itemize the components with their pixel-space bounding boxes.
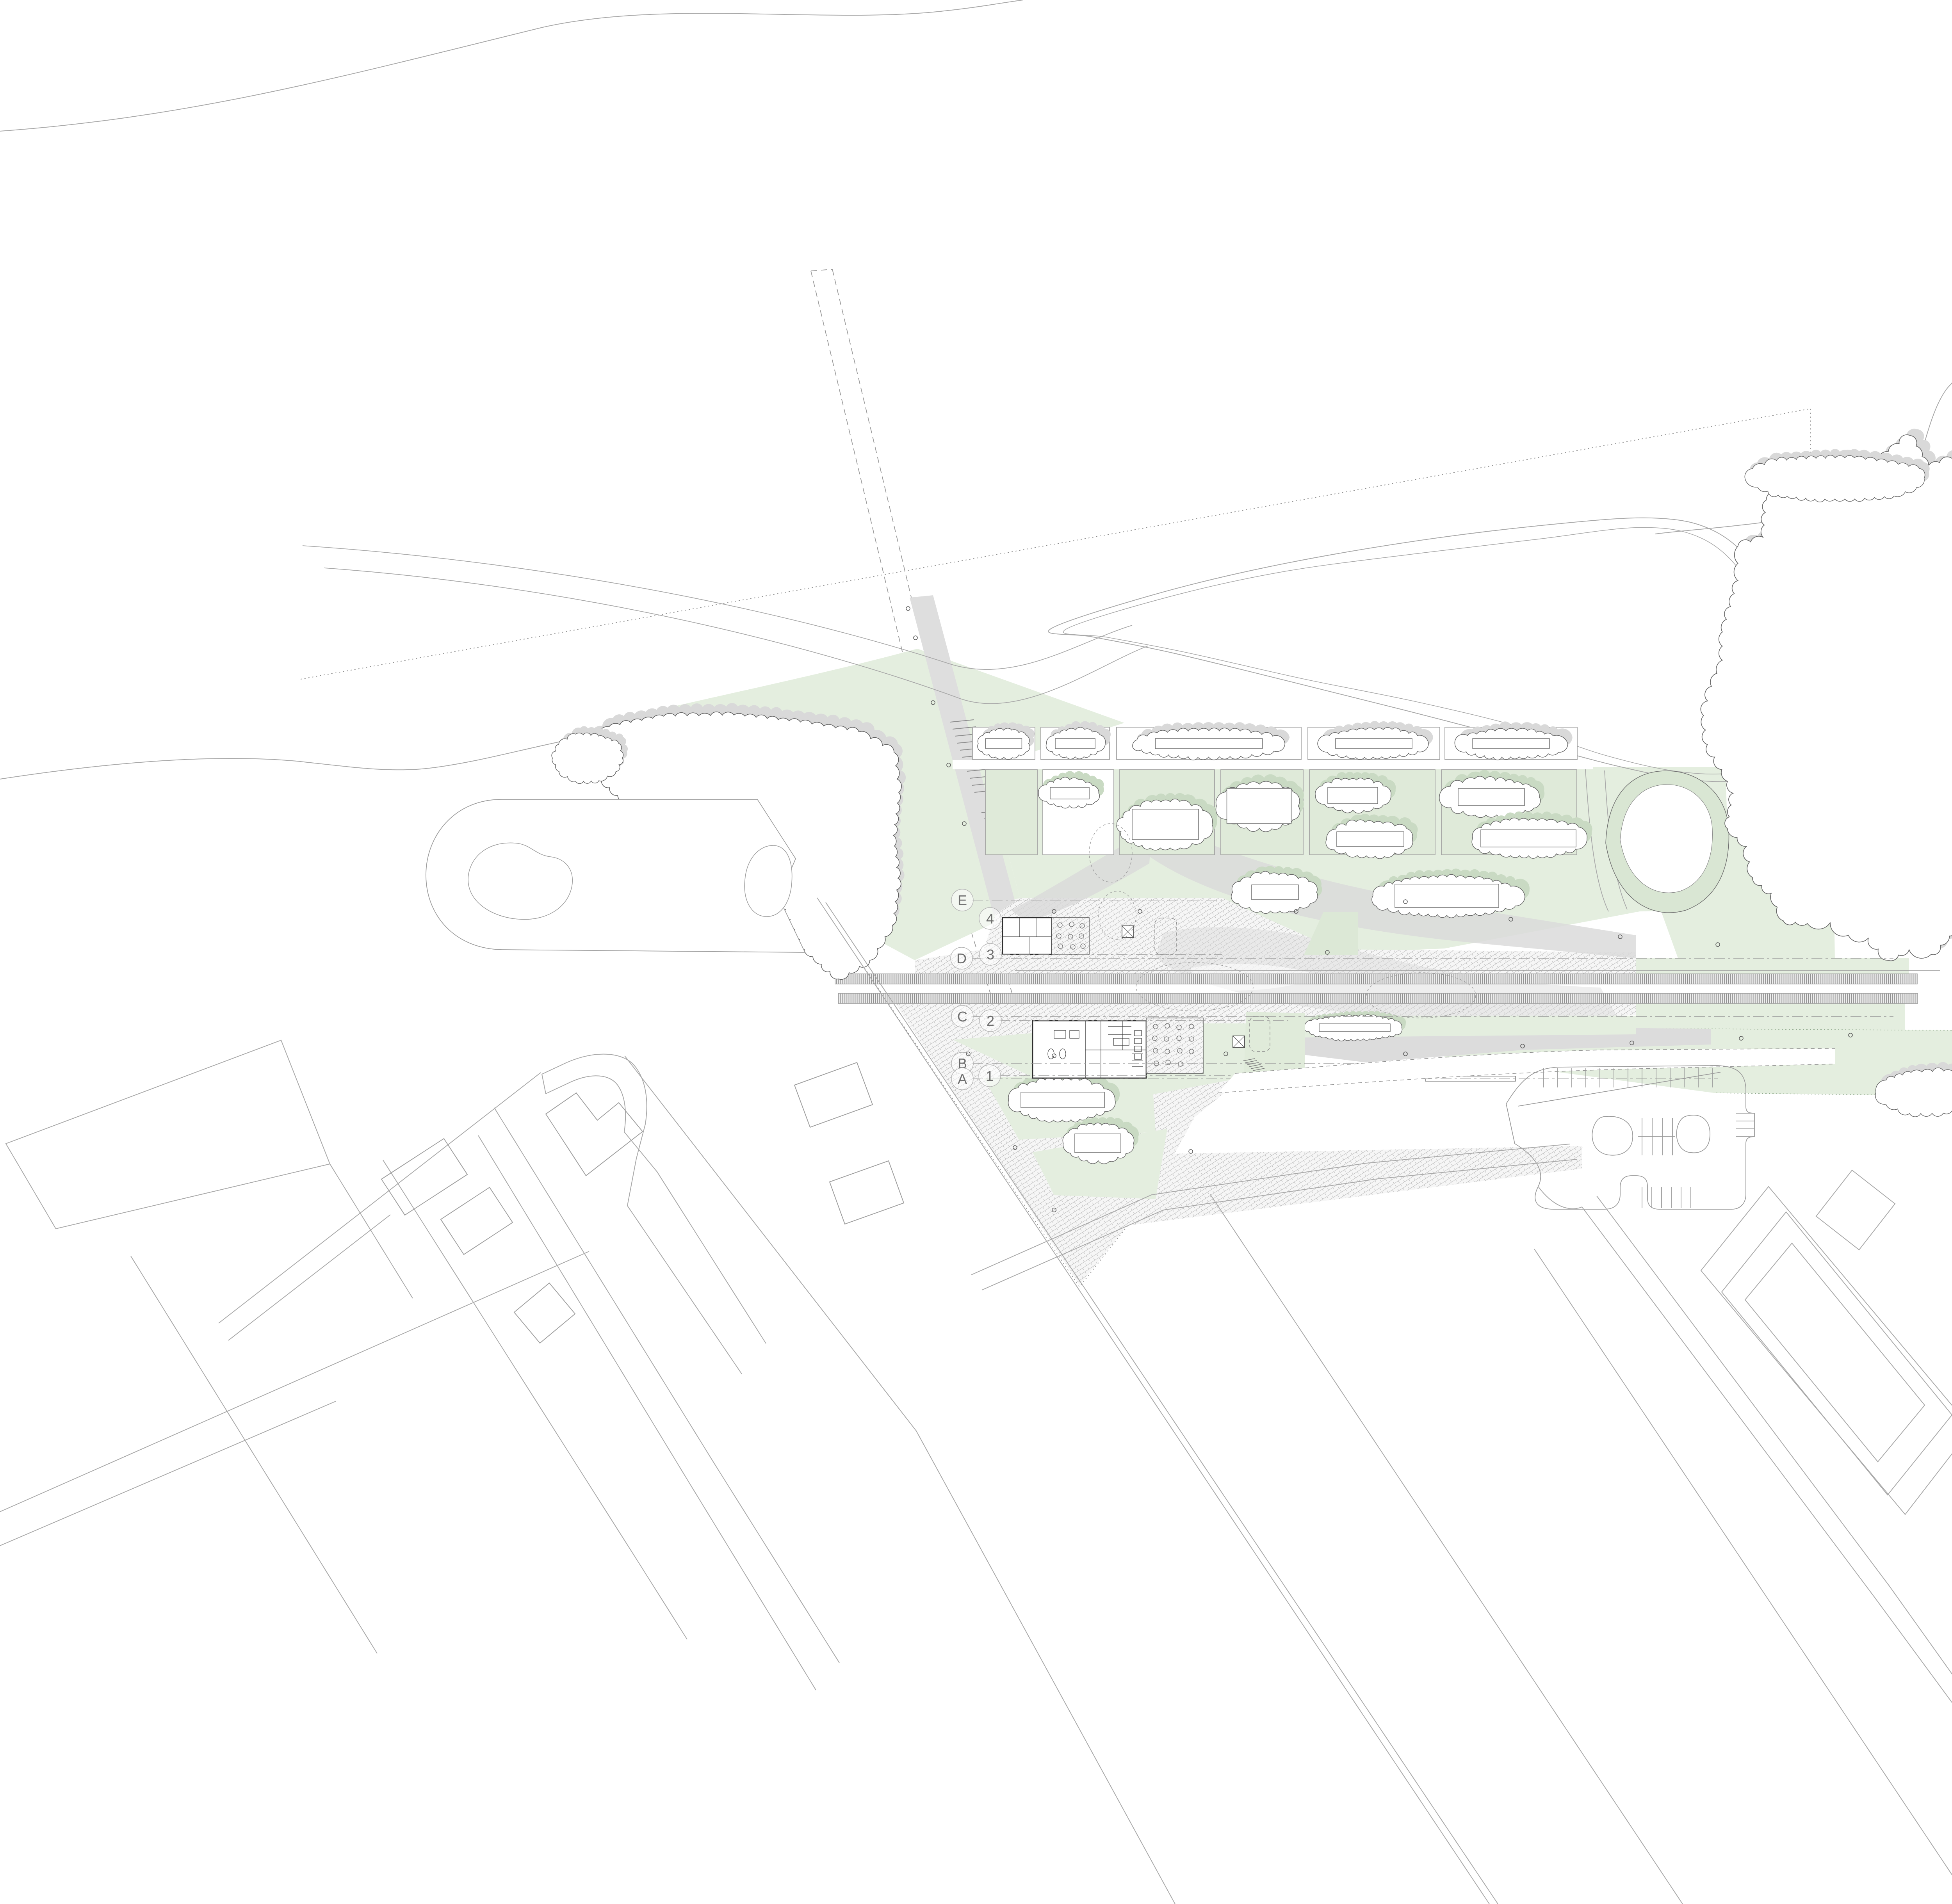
svg-text:C: C — [957, 1009, 967, 1025]
svg-text:4: 4 — [986, 911, 994, 927]
svg-text:A: A — [958, 1071, 967, 1087]
svg-text:D: D — [956, 950, 967, 966]
svg-text:1: 1 — [986, 1068, 994, 1084]
svg-text:2: 2 — [987, 1013, 994, 1029]
svg-text:E: E — [958, 892, 967, 908]
svg-text:3: 3 — [987, 947, 994, 963]
